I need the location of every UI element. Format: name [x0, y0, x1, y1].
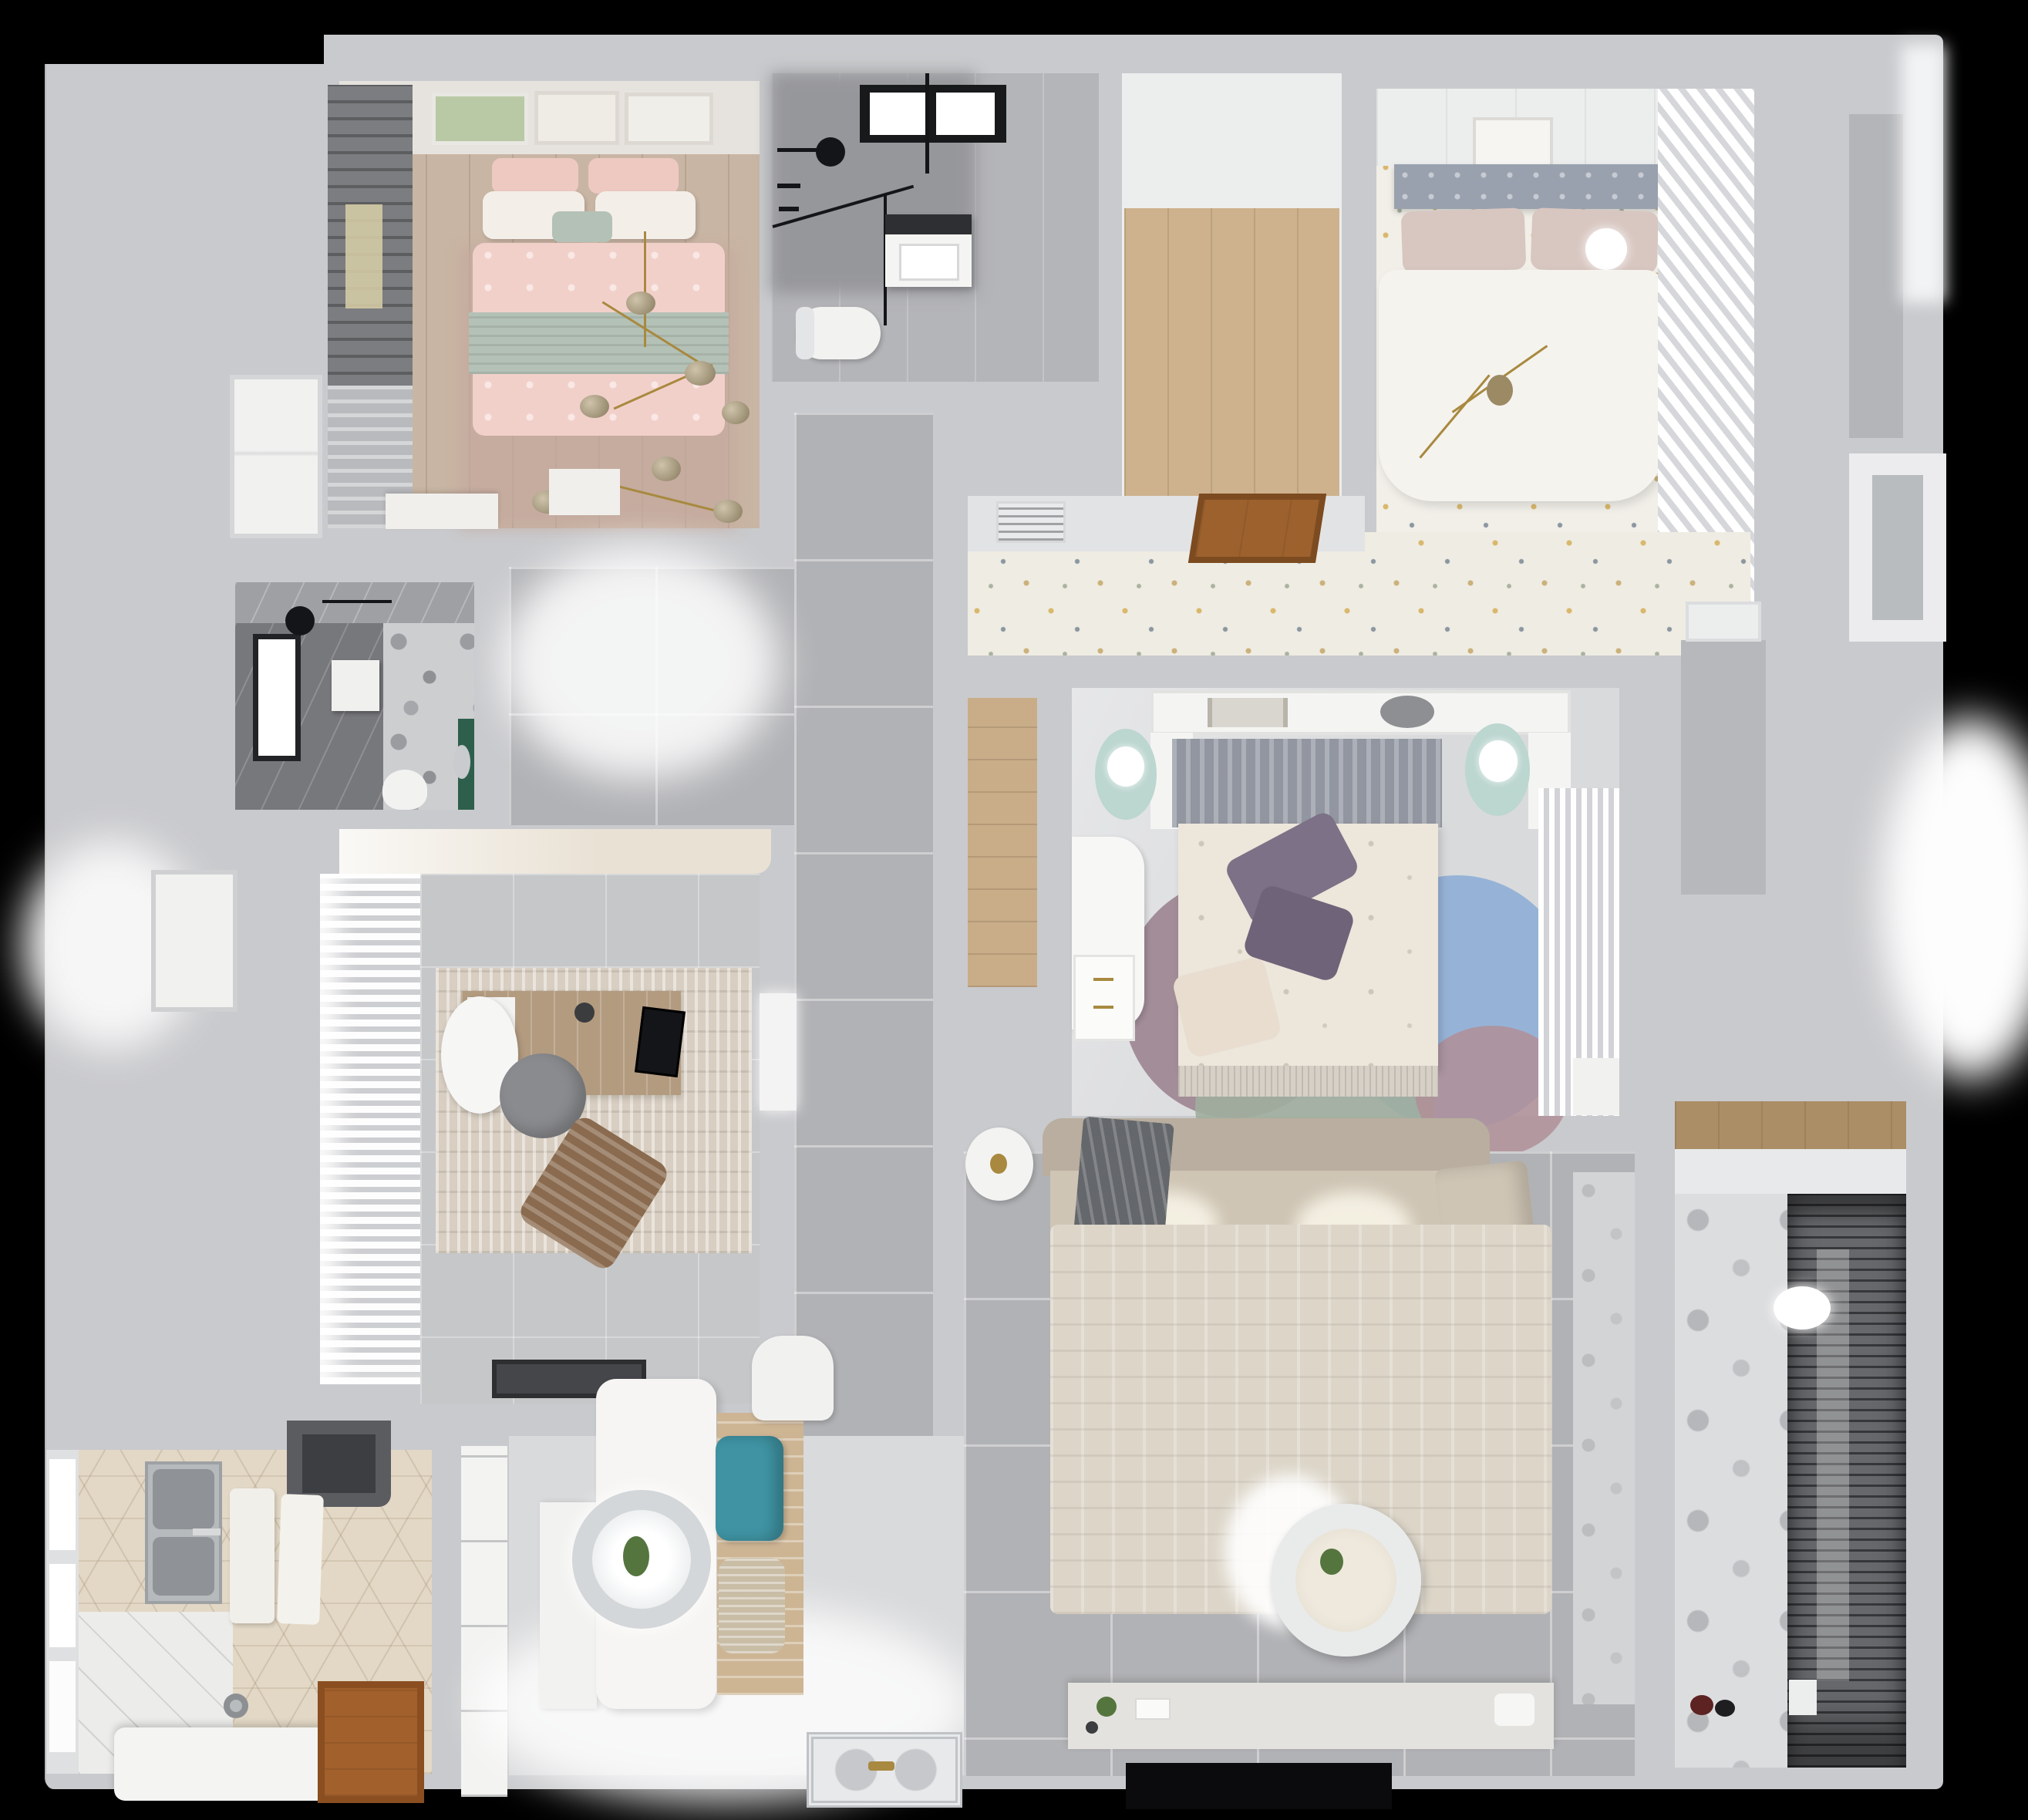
side-table-vase [990, 1154, 1007, 1174]
balcony-box [1789, 1680, 1817, 1715]
balcony-shelf-white [1675, 1149, 1906, 1194]
chandelier-bulb-4 [652, 457, 681, 481]
toilet-small [382, 770, 427, 810]
balcony-ball-light [1774, 1286, 1831, 1330]
corner-cut-top-left [0, 0, 324, 64]
chandelier-bulb-7 [713, 500, 743, 523]
corner-cut-top-right [1947, 0, 2028, 729]
dining-chair-teal [716, 1436, 783, 1541]
master-ball-lamp [1585, 228, 1627, 270]
bedroom-pink-nightstand [549, 469, 620, 515]
wood-shoe-niche [968, 698, 1037, 987]
kitchen-door-wood [318, 1681, 424, 1803]
study-laptop [635, 1006, 686, 1077]
skylight-pane-left [870, 93, 928, 135]
kitchen-window-pane-3 [49, 1661, 76, 1752]
bathroom-small-window [253, 634, 301, 761]
nightstand-lamp-left [1107, 747, 1144, 787]
skylight-pane-right [936, 93, 995, 135]
master-pillow-left [1401, 207, 1527, 274]
bathroom-small-shelf [332, 660, 379, 711]
art-frame-sprig [625, 93, 713, 145]
balcony-toy-2 [1715, 1700, 1735, 1717]
chandelier-rod-3 [644, 231, 646, 347]
bathroom-small-ceiling [235, 582, 474, 625]
washing-machine-panel [885, 214, 972, 234]
exterior-door-lower [151, 870, 237, 1012]
washing-machine-door [899, 244, 959, 281]
shelf-books [1208, 698, 1288, 727]
shower-arm [777, 148, 822, 152]
right-window-bay-pane [1872, 475, 1923, 620]
drawer-handle-1 [1093, 978, 1113, 981]
bed-pink-pillow-left [492, 158, 578, 194]
entrance-slippers [868, 1761, 894, 1771]
master-gold-vase [1487, 375, 1513, 406]
chandelier-bulb-3 [580, 395, 609, 418]
kitchen-window-pane-1 [49, 1459, 76, 1550]
balcony-shelf-wood [1675, 1101, 1906, 1149]
shower-valve-2 [779, 207, 799, 211]
console-box [1135, 1698, 1171, 1720]
master-headboard [1394, 164, 1666, 209]
living-accent-tile-strip [1573, 1172, 1635, 1704]
kitchen-board-2 [277, 1494, 324, 1625]
toilet-ensuite-tank [796, 307, 814, 359]
top-right-window-strip [1902, 45, 1945, 302]
wall-stub-living [933, 1114, 968, 1315]
sink-basin-2 [153, 1537, 214, 1596]
dining-chair-wicker [719, 1558, 785, 1653]
bedroom3-cabinet [1573, 1058, 1619, 1115]
kitchen-window-pane-2 [49, 1564, 76, 1647]
tv-panel [1126, 1763, 1392, 1809]
bathroom-small-showerhead [285, 606, 315, 635]
round-mirror [453, 745, 470, 779]
exterior-door-upper [230, 375, 322, 538]
bedroom3-bed-fringe [1178, 1066, 1438, 1097]
alcove-door [1686, 602, 1761, 642]
balcony-toy-1 [1690, 1695, 1713, 1715]
chandelier-bulb-5 [722, 401, 750, 424]
sink-basin-1 [153, 1469, 214, 1529]
nightstand-lamp-right [1479, 740, 1518, 782]
study-door-frame [760, 993, 797, 1111]
drawer-handle-2 [1093, 1006, 1113, 1009]
dining-chair-head [752, 1336, 834, 1421]
bed-sage-pillow [552, 211, 612, 242]
closet-hall-wood [1124, 208, 1339, 505]
study-desk-plant [574, 1003, 595, 1023]
right-gray-column [1849, 114, 1903, 438]
study-wardrobe-louver [320, 874, 420, 1384]
shower-valve-1 [777, 184, 800, 188]
chandelier-bulb-2 [685, 361, 716, 386]
pendant-plant [623, 1536, 649, 1576]
console-plant [1097, 1697, 1117, 1717]
shower-head [816, 137, 845, 167]
console-decor-right [1494, 1694, 1534, 1726]
range-hood-inner [302, 1434, 376, 1493]
bed-pink-pillow-right [588, 158, 679, 194]
bedroom3-headboard [1172, 739, 1442, 827]
console-speaker [1086, 1721, 1098, 1734]
hallway-glow [501, 548, 779, 779]
corner-cut-right-low [1947, 1072, 2028, 1820]
shelf-tray [1380, 696, 1434, 728]
island-faucet-ring [224, 1694, 248, 1718]
bathroom-small-pipes [322, 600, 392, 603]
art-frame-botanical [432, 93, 528, 145]
hallway-floor-vertical [794, 413, 933, 1436]
art-frame-white [534, 91, 619, 145]
master-duvet [1379, 270, 1664, 501]
alcove-floor [1681, 640, 1766, 895]
coffee-table-ring [1271, 1504, 1421, 1657]
study-top-band [339, 829, 771, 874]
bedroom3-drawer [1073, 955, 1135, 1041]
hvac-vent-grille [996, 501, 1066, 543]
attic-hatch-wood [1188, 494, 1326, 563]
sink-faucet [193, 1528, 221, 1535]
bedroom-pink-dresser [386, 494, 498, 529]
shower-pipe [925, 73, 929, 174]
floor-plan-render [0, 0, 2028, 1820]
window-light [345, 204, 382, 308]
coffee-table-plant [1320, 1549, 1343, 1575]
kitchen-board-1 [230, 1488, 275, 1623]
chandelier-bulb-1 [626, 292, 655, 315]
kitchen-island [114, 1727, 330, 1801]
